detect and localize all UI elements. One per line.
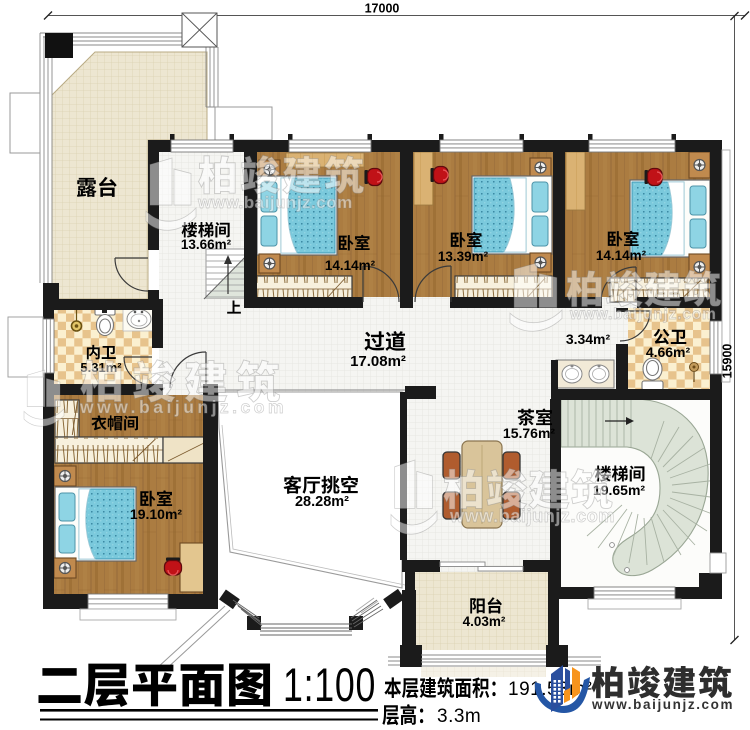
svg-text:14.14m²: 14.14m²: [325, 258, 376, 273]
svg-text:17000: 17000: [365, 2, 400, 16]
svg-text:4.03m²: 4.03m²: [463, 614, 506, 629]
svg-text:13.66m²: 13.66m²: [181, 237, 232, 252]
svg-text:3.3m: 3.3m: [437, 706, 481, 727]
svg-text:15900: 15900: [721, 344, 735, 379]
svg-text:www.baijunjz.com: www.baijunjz.com: [197, 193, 353, 212]
svg-text:14.14m²: 14.14m²: [596, 248, 647, 263]
svg-text:28.28m²: 28.28m²: [295, 494, 349, 510]
svg-text:3.34m²: 3.34m²: [566, 331, 611, 347]
svg-text:19.10m²: 19.10m²: [130, 506, 182, 522]
svg-text:www.baijunjz.com: www.baijunjz.com: [79, 397, 287, 417]
svg-text:www.baijunjz.com: www.baijunjz.com: [449, 506, 615, 526]
svg-text:1:100: 1:100: [283, 658, 376, 711]
svg-text:13.39m²: 13.39m²: [438, 249, 489, 264]
svg-text:www.baijunjz.com: www.baijunjz.com: [569, 306, 717, 323]
svg-text:17.08m²: 17.08m²: [350, 353, 406, 370]
svg-text:15.76m²: 15.76m²: [503, 425, 555, 441]
svg-text:4.66m²: 4.66m²: [646, 344, 691, 360]
svg-text:www.baijunjz.com: www.baijunjz.com: [591, 697, 734, 712]
